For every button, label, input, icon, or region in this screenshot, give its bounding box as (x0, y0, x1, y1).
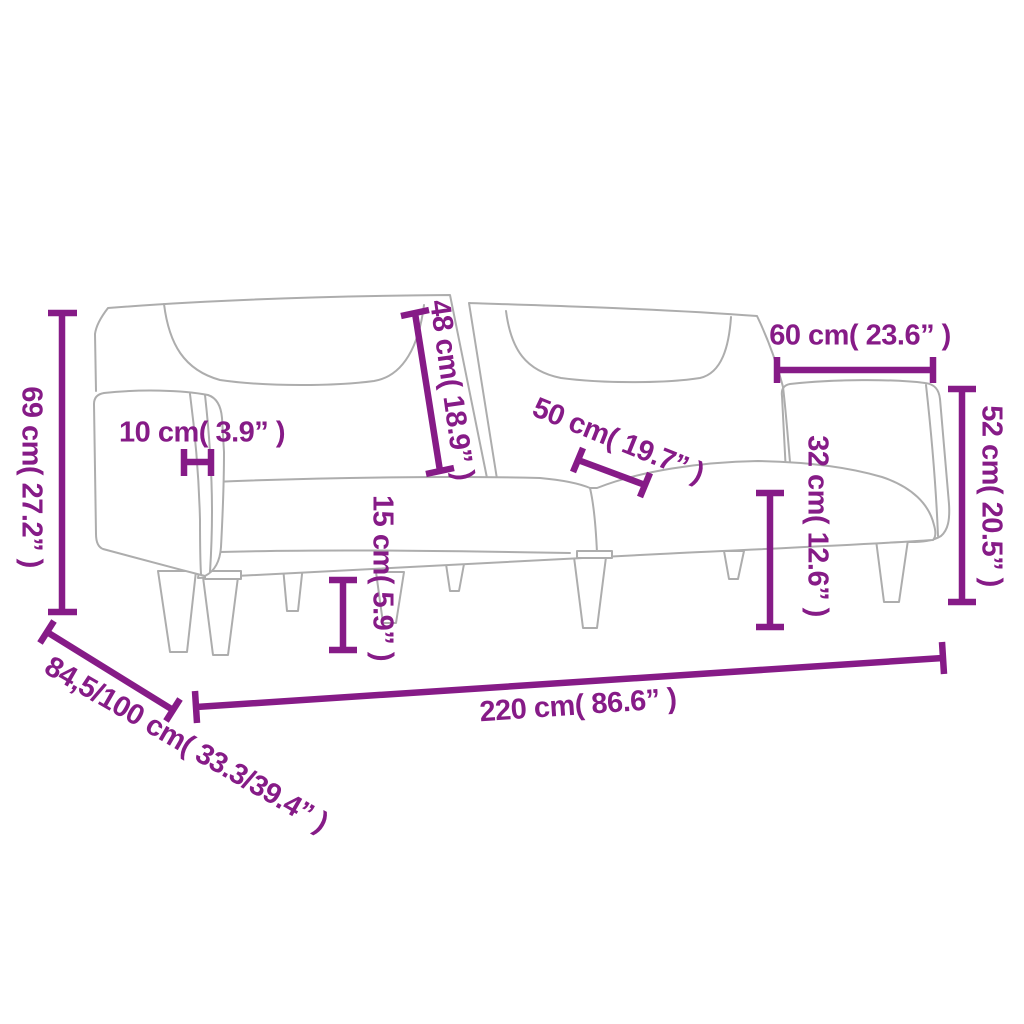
right-armrest-height-label: 52 cm( 20.5” ) (977, 405, 1006, 587)
sofa-leg (876, 540, 908, 602)
sofa-leg (574, 557, 606, 628)
leg-height-label: 15 cm( 5.9” ) (368, 495, 397, 661)
right-armrest-length-label: 60 cm( 23.6” ) (769, 322, 951, 351)
sofa-leg (724, 551, 744, 579)
sofa-leg (158, 571, 196, 652)
backrest-right-cushion-seam (506, 311, 731, 382)
dimension-diagram: 69 cm( 27.2” ) 10 cm( 3.9” ) 48 cm( 18.9… (0, 0, 1024, 1024)
sofa-leg (446, 564, 464, 591)
right-armrest-length-dim-line (777, 357, 933, 383)
seat-height-label: 32 cm( 12.6” ) (803, 435, 832, 617)
leg-height-dim-line (329, 580, 357, 650)
sofa-leg (203, 577, 238, 655)
right-armrest-height-dim-line (948, 389, 976, 602)
frame-bracket (577, 551, 612, 558)
armrest-width-label: 10 cm( 3.9” ) (119, 419, 285, 448)
overall-height-dim-line (48, 313, 77, 612)
backrest-left-cushion-seam (164, 304, 424, 385)
sofa-diagram-canvas (0, 0, 1024, 1024)
overall-height-label: 69 cm( 27.2” ) (17, 386, 46, 568)
